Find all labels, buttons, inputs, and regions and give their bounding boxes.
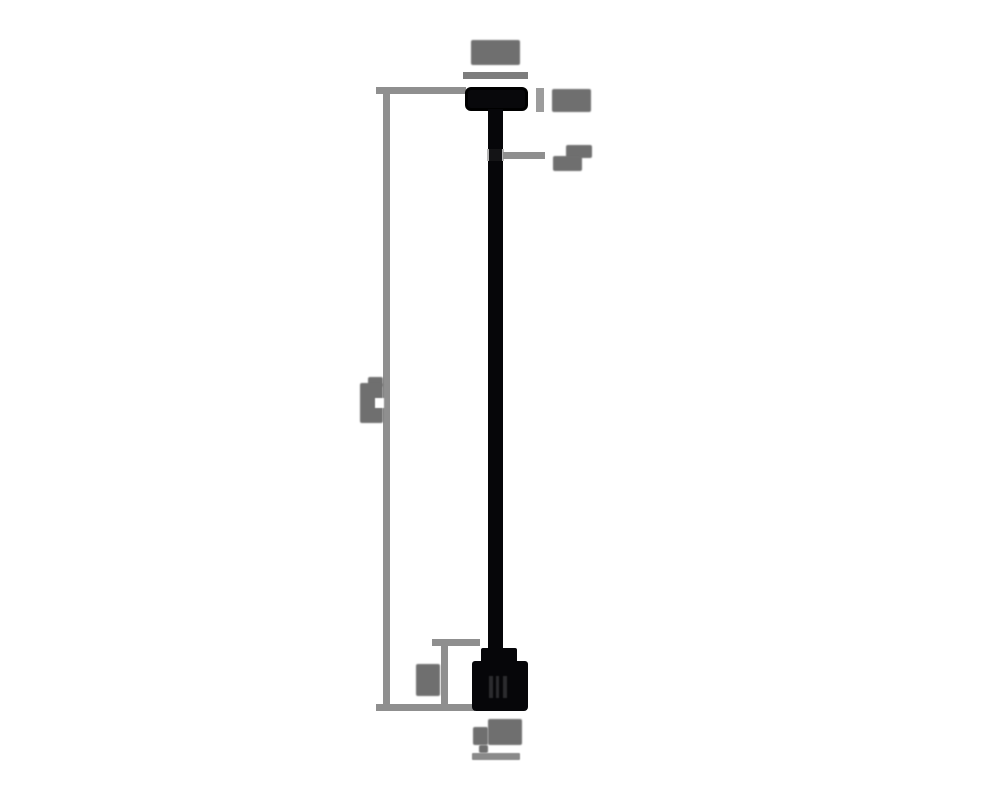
stem-coupler (487, 149, 504, 161)
canopy (465, 87, 528, 111)
stem-diameter-label-blur (553, 156, 582, 171)
canopy-width-dimension-line (463, 72, 528, 79)
socket-diameter-label-blur (479, 745, 488, 753)
dimension-diagram (0, 0, 1000, 797)
socket-detail-line (496, 676, 499, 698)
overall-height-dimension-line (383, 87, 390, 711)
canopy-width-label-blur (471, 40, 520, 65)
canopy-height-label-blur (552, 89, 591, 112)
overall-height-extension-bottom (376, 704, 475, 711)
overall-height-label-gap (375, 398, 384, 408)
socket-diameter-label-blur (488, 719, 522, 745)
stem-diameter-leader-line (503, 152, 545, 159)
socket-body (472, 661, 528, 711)
socket-height-label-blur (416, 664, 440, 696)
socket-detail-line (489, 676, 493, 698)
socket-diameter-underline-bar (472, 753, 520, 760)
socket-height-dimension-line (441, 639, 448, 706)
canopy-height-tick (536, 88, 544, 112)
socket-height-extension-top (432, 639, 480, 646)
stem-rod (488, 109, 503, 660)
socket-detail-line (503, 676, 507, 698)
socket-diameter-label-blur (473, 727, 488, 745)
